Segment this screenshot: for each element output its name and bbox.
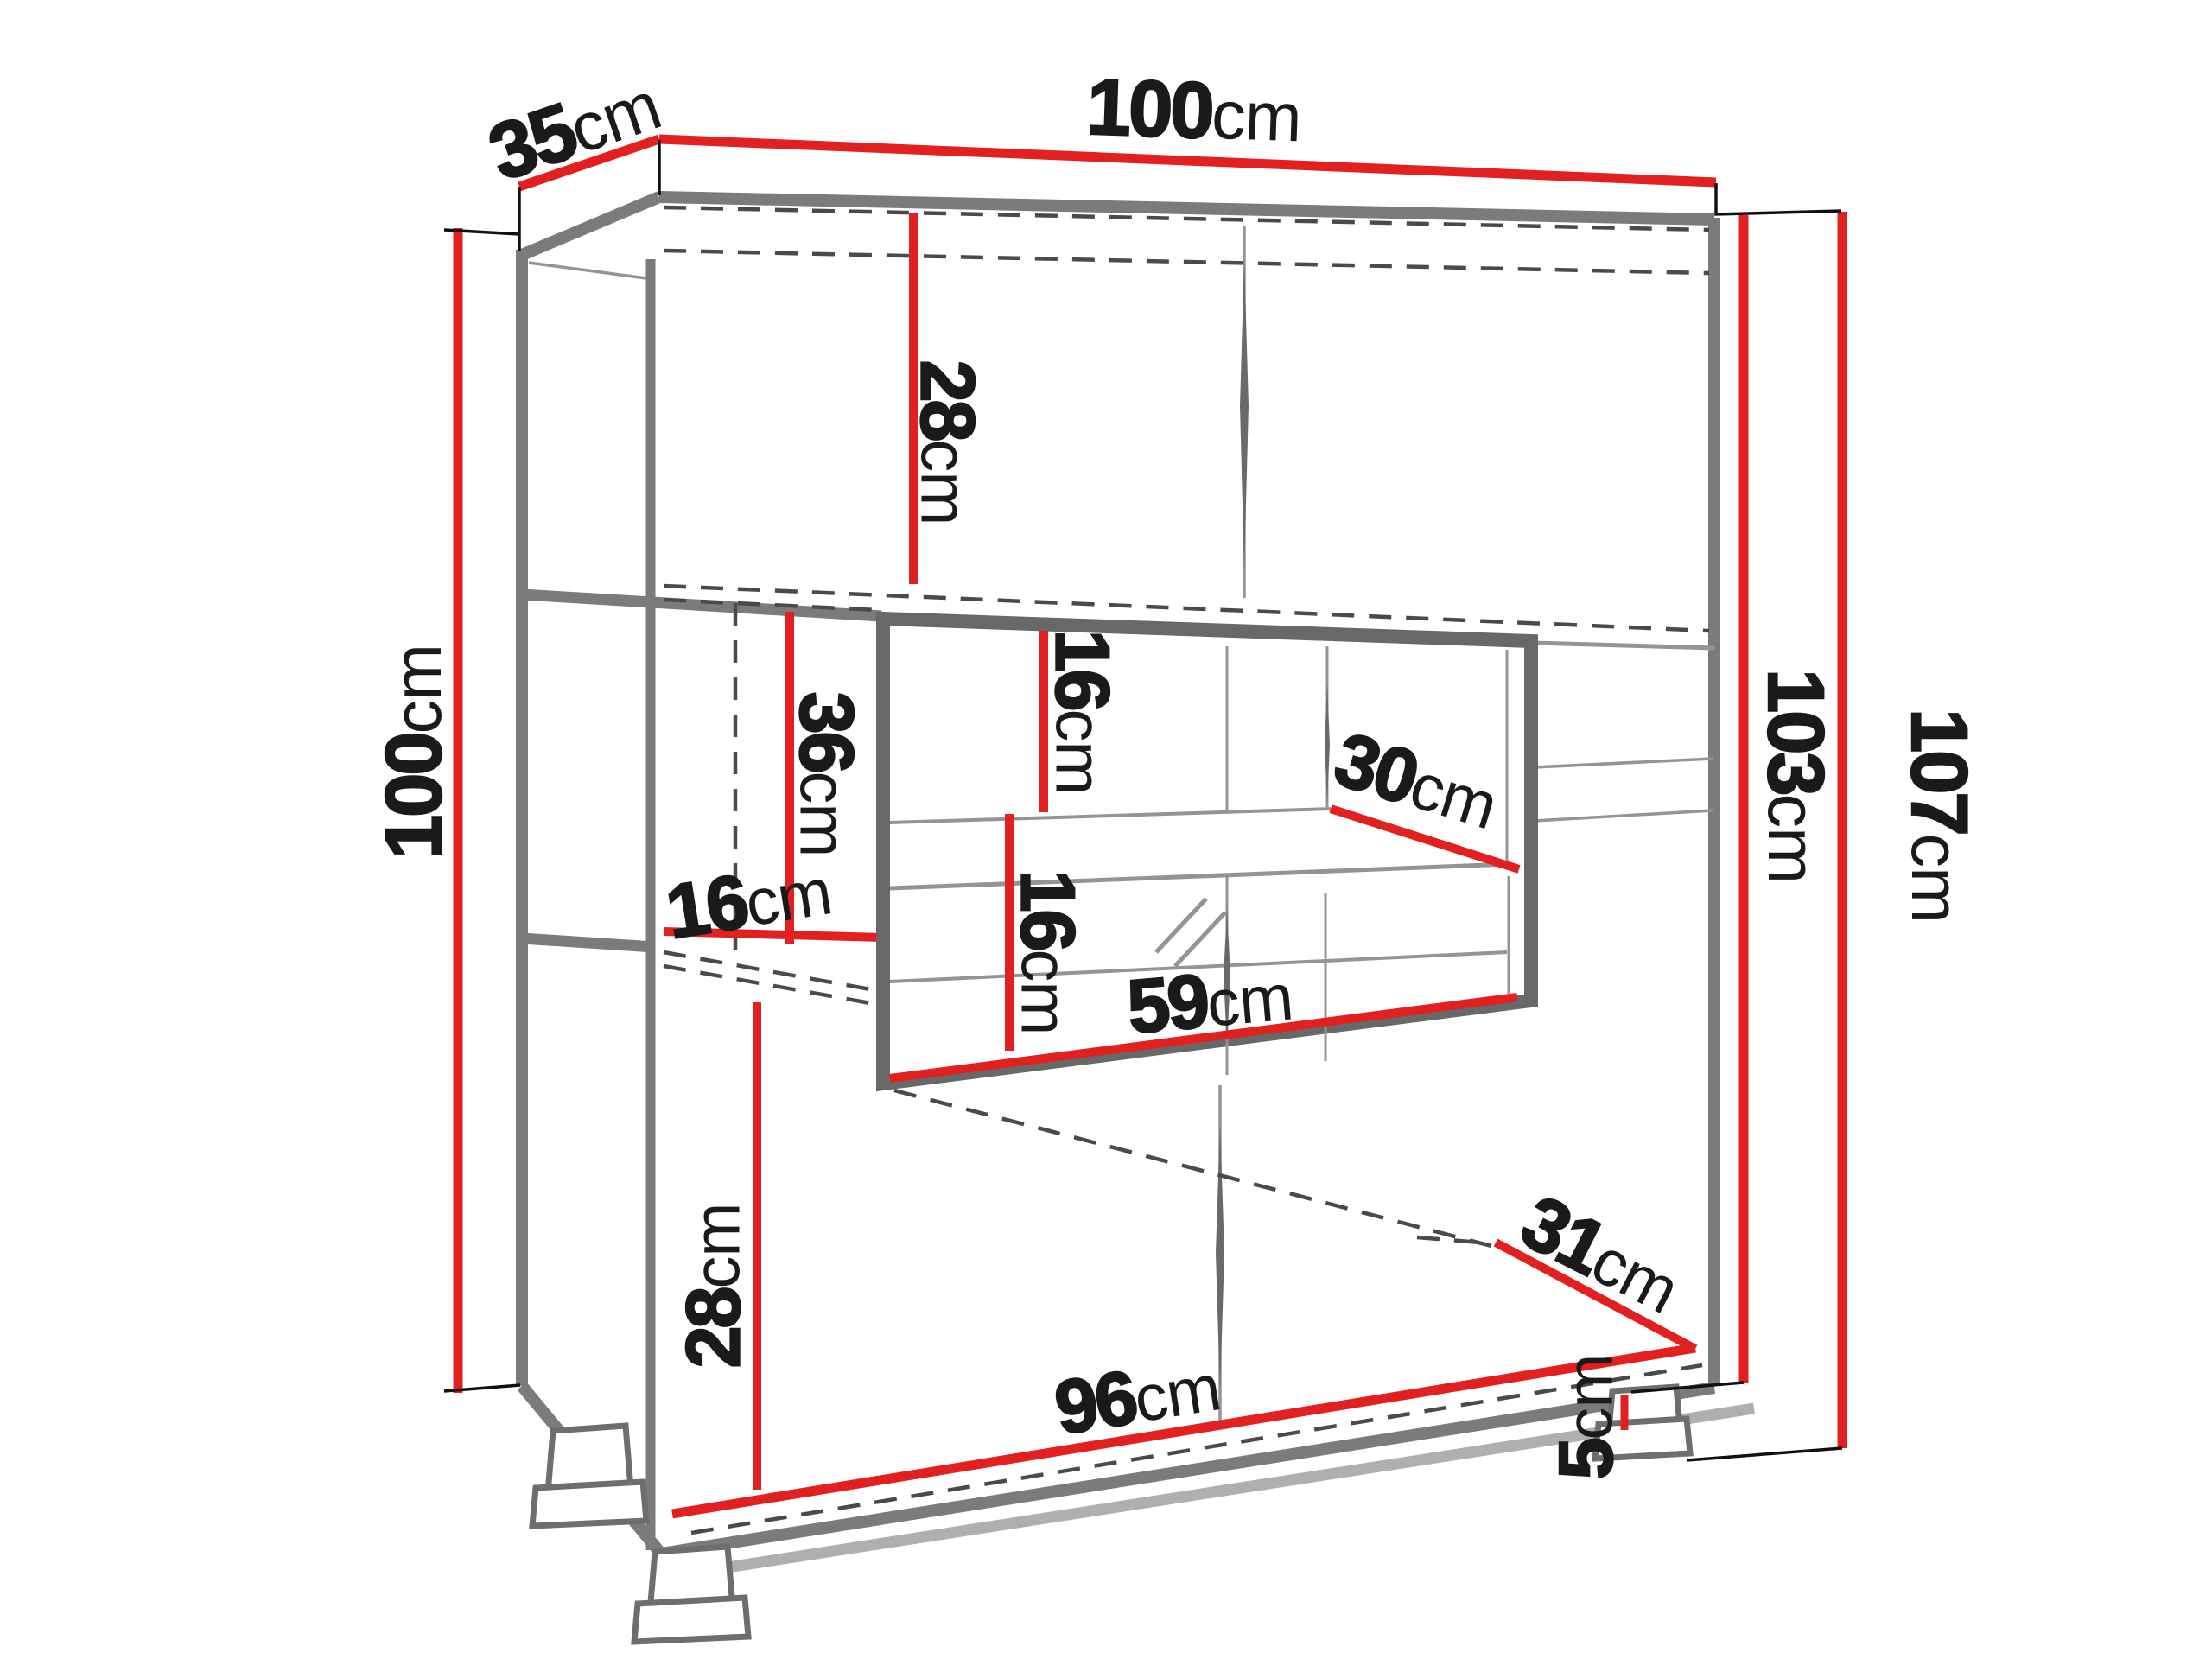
dim-label-height-103: 103cm [1751, 669, 1840, 883]
dim-label-bottom-section-28: 28cm [671, 1204, 756, 1369]
dim-label-leg-height-5: 5cm [1543, 1355, 1629, 1480]
leg-front-left-foot [634, 1598, 748, 1642]
dim-label-top-section-28: 28cm [905, 360, 990, 525]
dim-label-depth-35: 35cm [479, 58, 671, 197]
dim-label-height-107: 107cm [1895, 709, 1983, 923]
dim-label-bottom-depth-31: 31cm [1509, 1179, 1694, 1330]
dim-label-height-left-100: 100cm [370, 645, 458, 859]
shelf-line-bottom [522, 938, 654, 947]
dim-label-bottom-width-96: 96cm [1049, 1340, 1225, 1451]
dim-label-display-top-16: 16cm [1039, 630, 1125, 795]
shelf-line-top [522, 594, 881, 616]
dim-label-display-bottom-16: 16cm [1005, 870, 1090, 1035]
dim-label-width-100: 100cm [1085, 63, 1302, 159]
dim-label-middle-left-36: 36cm [784, 692, 869, 857]
furniture-dimension-diagram: 35cm100cm100cm103cm107cm28cm16cm30cm36cm… [0, 0, 2212, 1659]
leg-back-left-foot [532, 1482, 646, 1526]
door-divider-top [1240, 226, 1249, 598]
diagram-canvas: 35cm100cm100cm103cm107cm28cm16cm30cm36cm… [0, 0, 2212, 1659]
